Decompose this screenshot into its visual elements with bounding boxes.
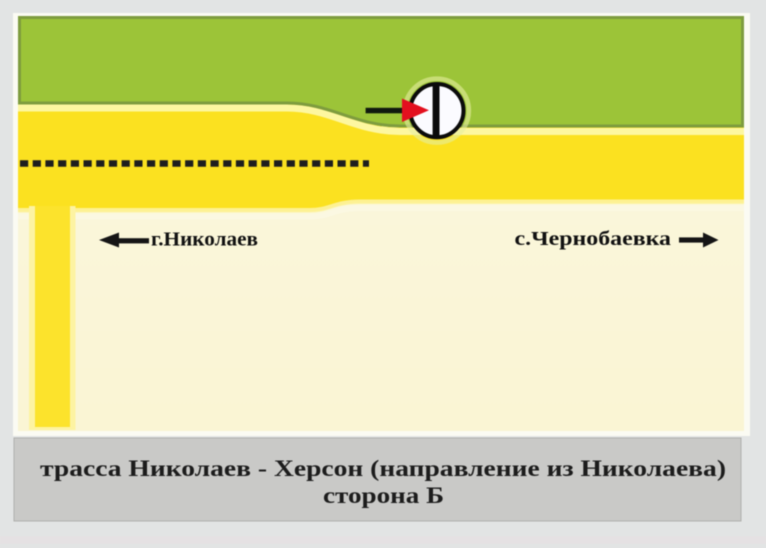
svg-text:сторона Б: сторона Б [323, 483, 444, 508]
svg-text:трасса Николаев - Херсон (напр: трасса Николаев - Херсон (направление из… [40, 456, 726, 481]
svg-text:г.Николаев: г.Николаев [151, 229, 258, 251]
svg-text:с.Чернобаевка: с.Чернобаевка [515, 228, 672, 250]
